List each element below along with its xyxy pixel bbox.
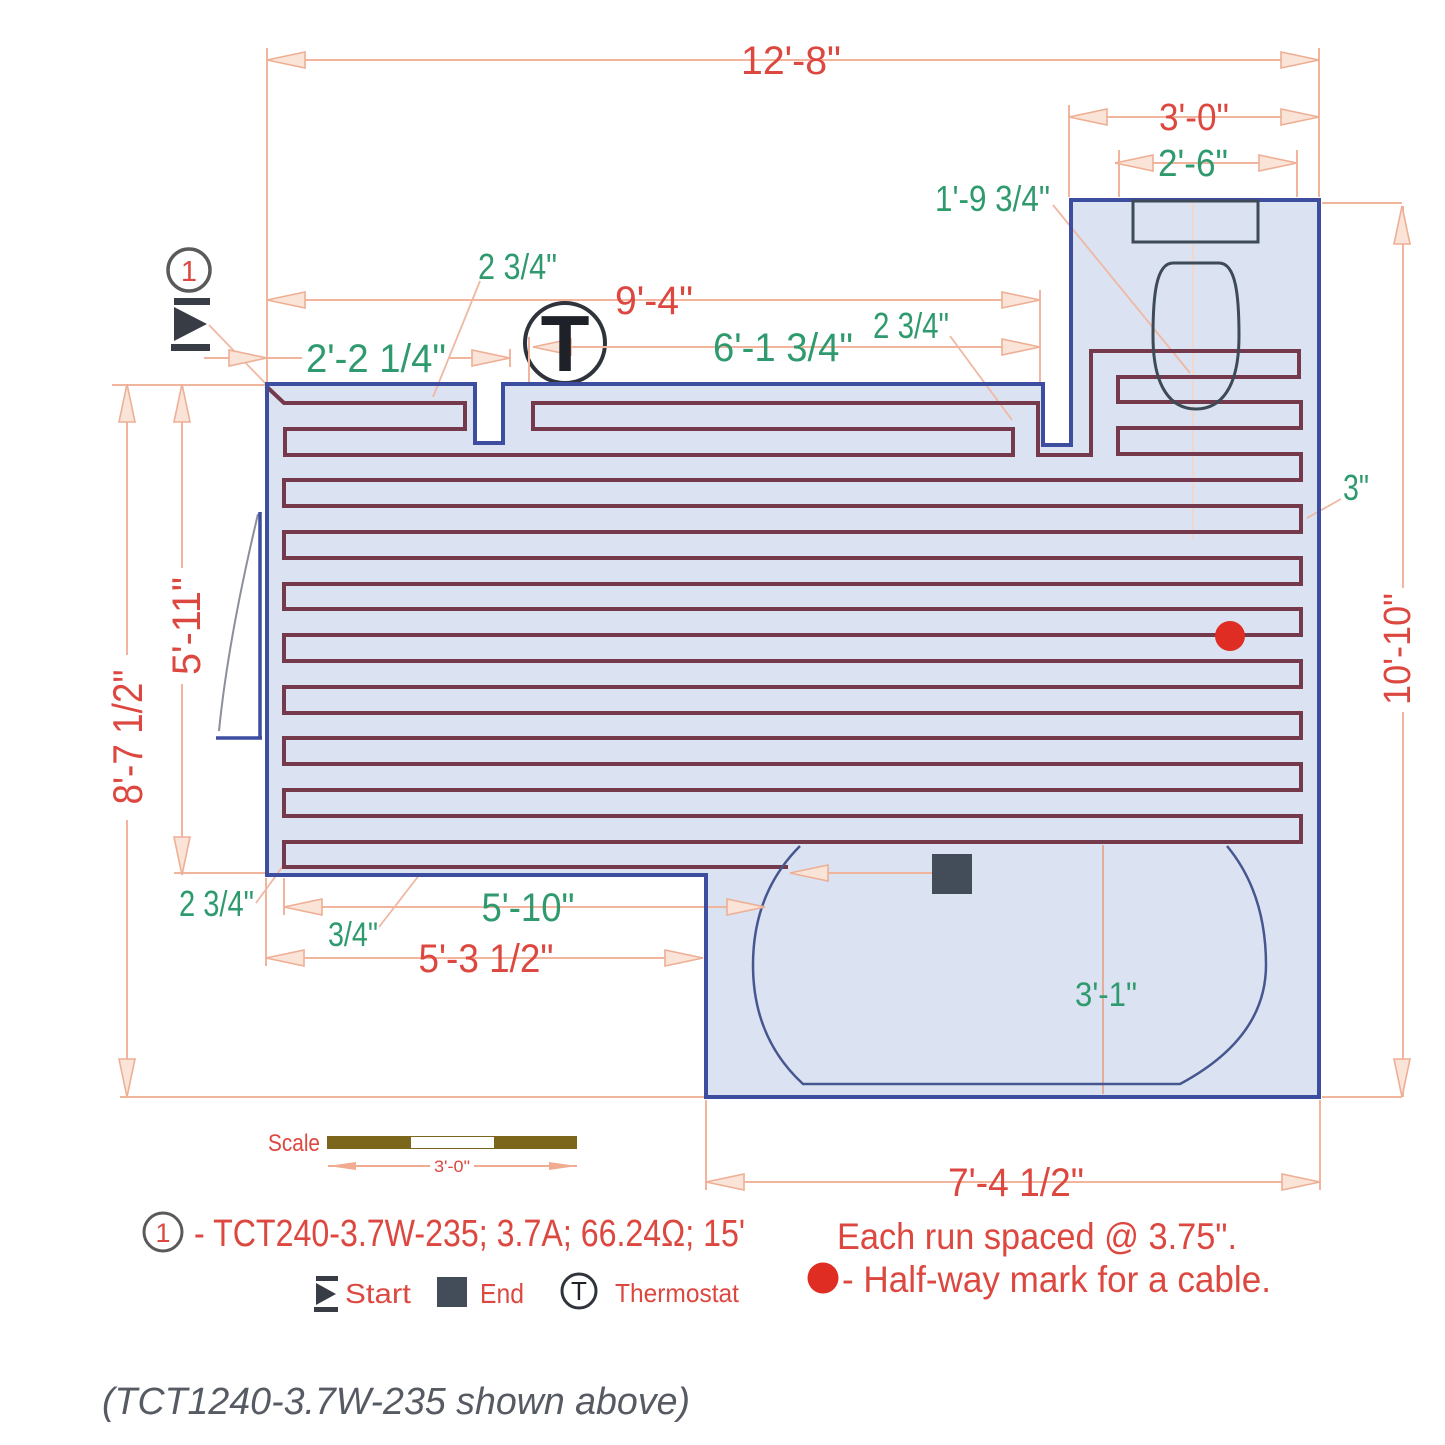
svg-text:2 3/4": 2 3/4": [873, 305, 949, 346]
svg-text:3'-0": 3'-0": [1159, 97, 1229, 139]
svg-text:5'-3 1/2": 5'-3 1/2": [419, 937, 554, 981]
svg-text:3'-1": 3'-1": [1075, 976, 1137, 1014]
svg-text:7'-4 1/2": 7'-4 1/2": [948, 1161, 1084, 1205]
svg-text:3'-0": 3'-0": [434, 1157, 470, 1176]
svg-text:5'-10": 5'-10": [482, 886, 575, 930]
svg-text:2'-6": 2'-6": [1158, 143, 1228, 185]
svg-text:- TCT240-3.7W-235; 3.7A; 66.24: - TCT240-3.7W-235; 3.7A; 66.24Ω; 15': [194, 1213, 745, 1255]
svg-text:12'-8": 12'-8": [741, 39, 841, 83]
svg-text:1: 1: [181, 256, 197, 288]
svg-text:8'-7 1/2": 8'-7 1/2": [104, 670, 151, 805]
svg-text:2 3/4": 2 3/4": [478, 246, 557, 287]
svg-text:1'-9 3/4": 1'-9 3/4": [935, 178, 1050, 219]
svg-text:End: End: [480, 1278, 524, 1309]
svg-text:- Half-way mark for a cable.: - Half-way mark for a cable.: [842, 1259, 1271, 1300]
svg-text:3": 3": [1343, 467, 1369, 508]
svg-text:Start: Start: [345, 1278, 411, 1309]
svg-text:5'-11": 5'-11": [165, 577, 209, 675]
svg-text:2'-2 1/4": 2'-2 1/4": [306, 337, 446, 381]
svg-text:1: 1: [155, 1218, 170, 1248]
svg-text:9'-4": 9'-4": [615, 279, 693, 323]
svg-text:Scale: Scale: [268, 1130, 320, 1157]
svg-text:6'-1 3/4": 6'-1 3/4": [713, 326, 853, 370]
svg-text:T: T: [541, 299, 590, 388]
svg-text:Each run spaced @ 3.75".: Each run spaced @ 3.75".: [837, 1216, 1237, 1257]
svg-text:(TCT1240-3.7W-235 shown above): (TCT1240-3.7W-235 shown above): [102, 1381, 690, 1423]
svg-text:3/4": 3/4": [328, 916, 378, 954]
svg-text:10'-10": 10'-10": [1377, 593, 1419, 705]
svg-text:Thermostat: Thermostat: [615, 1278, 740, 1308]
svg-text:2 3/4": 2 3/4": [179, 883, 254, 924]
svg-text:T: T: [571, 1276, 587, 1306]
